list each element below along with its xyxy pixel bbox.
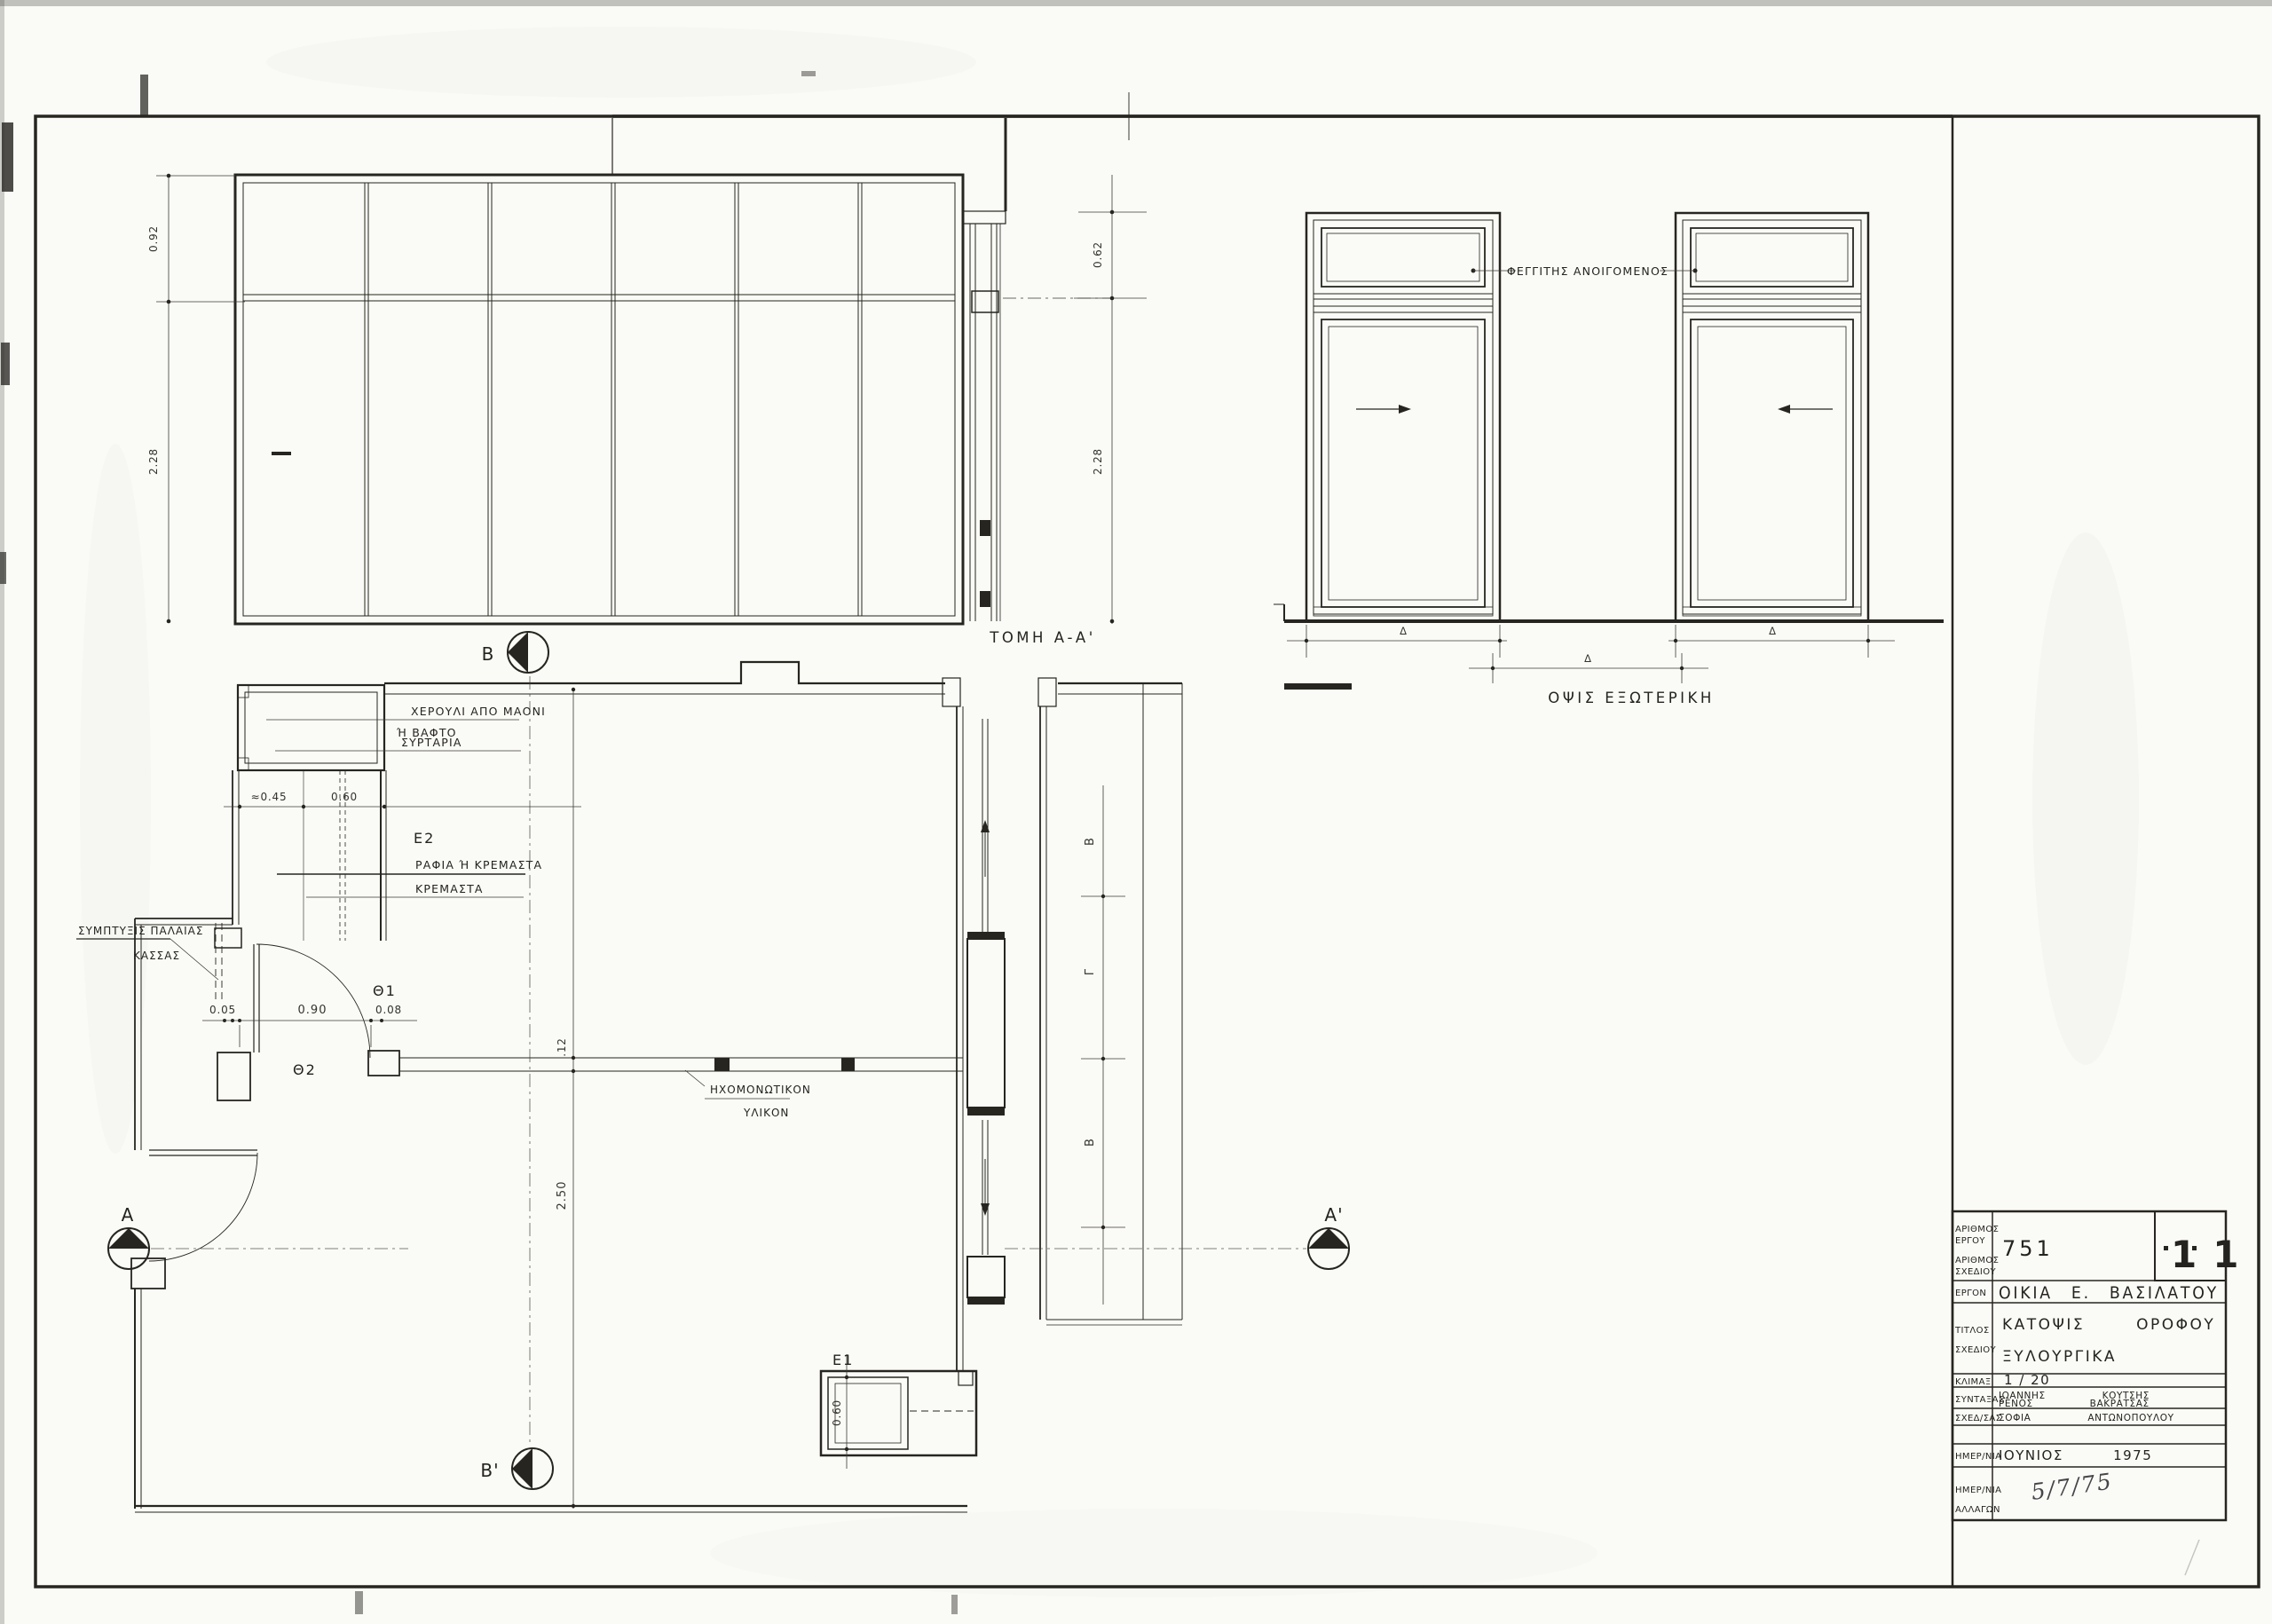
- dim-door-width: 0.90: [298, 1004, 327, 1017]
- dim-e1-width: 0.60: [831, 1399, 843, 1426]
- scale-value: 1 / 20: [2004, 1372, 2050, 1388]
- corridor-dims: Β Γ Β: [1081, 785, 1125, 1305]
- swing-arrow-icon: [1399, 405, 1411, 414]
- closet-e1: 0.60 Ε1: [821, 1352, 976, 1469]
- drawers-note: ΣΥΡΤΑΡΙΑ: [401, 736, 462, 749]
- swing-arrow-icon: [1778, 405, 1790, 414]
- floor-plan: 0.60 Ε1: [76, 632, 1349, 1512]
- elevation-view: ΦΕΓΓΙΤΗΣ ΑΝΟΙΓΟΜΕΝΟΣ Δ Δ Δ ΟΨΙΣ ΕΞΩΤΕΡΙΚ…: [612, 116, 1952, 706]
- dim-section-left-top: 0.92: [147, 225, 160, 252]
- shelves-note-2: ΚΡΕΜΑΣΤΑ: [415, 882, 484, 895]
- drawing-sheet: 0.92 2.28 0.62 2.28 ΤΟΜΗ Α-Α': [0, 0, 2272, 1624]
- partition-wall: [399, 1058, 963, 1071]
- section-left-dims: 0.92 2.28: [147, 174, 245, 624]
- section-view: 0.92 2.28 0.62 2.28 ΤΟΜΗ Α-Α': [147, 118, 1147, 646]
- svg-text:ΕΡΓΟΥ: ΕΡΓΟΥ: [1955, 1236, 1985, 1246]
- project-number-label: ΑΡΙΘΜΟΣ: [1955, 1225, 1999, 1234]
- section-right-dims: 0.62 2.28: [1003, 175, 1147, 624]
- svg-text:ΑΛΛΑΓΩΝ: ΑΛΛΑΓΩΝ: [1955, 1505, 2000, 1515]
- door-jamb: [368, 1051, 399, 1076]
- dim-section-right-bottom: 2.28: [1092, 448, 1104, 475]
- dim-e2-depth: ≈0.45: [251, 791, 288, 803]
- marker-b: B: [482, 632, 548, 673]
- corridor-dim-b2: Β: [1084, 1138, 1097, 1147]
- svg-text:ΣΧΕΔΙΟΥ: ΣΧΕΔΙΟΥ: [1955, 1345, 1997, 1355]
- svg-text:ΣΧΕΔΙΟΥ: ΣΧΕΔΙΟΥ: [1955, 1267, 1997, 1277]
- door-dims: 0.05 0.90 0.08: [202, 1004, 417, 1047]
- dim-delta-mid: Δ: [1584, 652, 1591, 665]
- svg-text:A: A: [122, 1204, 135, 1226]
- drawing-number-label: ΑΡΙΘΜΟΣ: [1955, 1256, 1999, 1265]
- handle-note-1: ΧΕΡΟΥΛΙ ΑΠΟ ΜΑΟΝΙ: [411, 705, 546, 718]
- scan-artifacts: [0, 0, 2272, 1624]
- old-frame: [215, 923, 241, 1001]
- marker-b-prime: B': [480, 1448, 553, 1489]
- corridor-dim-b1: Β: [1084, 837, 1097, 846]
- sheet-number: 11: [2171, 1233, 2254, 1276]
- insulation-note-1: ΗΧΟΜΟΝΩΤΙΚΟΝ: [710, 1084, 811, 1096]
- section-title: ΤΟΜΗ Α-Α': [989, 629, 1096, 646]
- scale-label: ΚΛΙΜΑΞ: [1955, 1377, 1992, 1387]
- door-swing-arc: [149, 1153, 257, 1261]
- drawing-title-1: ΚΑΤΟΨΙΣ ΟΡΟΦΟΥ: [2002, 1316, 2215, 1334]
- svg-text:B: B: [482, 643, 495, 665]
- dim-section-right-top: 0.62: [1092, 241, 1104, 268]
- date-label: ΗΜΕΡ/ΝΙΑ: [1955, 1452, 2001, 1462]
- drawing-title-label: ΤΙΤΛΟΣ: [1954, 1326, 1990, 1336]
- elevation-title: ΟΨΙΣ ΕΞΩΤΕΡΙΚΗ: [1548, 690, 1715, 706]
- elevation-door-left: [1306, 213, 1500, 621]
- revision-label: ΗΜΕΡ/ΝΙΑ: [1955, 1486, 2001, 1495]
- old-frame-note-1: ΣΥΜΠΤΥΞΙΣ ΠΑΛΑΙΑΣ: [78, 925, 203, 937]
- e2-dims: ≈0.45 0.60: [224, 791, 581, 808]
- elevation-door-right: [1676, 213, 1868, 621]
- door-leaf: [1691, 319, 1853, 607]
- revision-date-handwritten: 5/7/75: [2030, 1468, 2115, 1505]
- old-frame-note-2: ΚΑΣΣΑΣ: [133, 950, 180, 962]
- shelves-note-1: ΡΑΦΙΑ Ή ΚΡΕΜΑΣΤΑ: [415, 858, 542, 871]
- section-mullions: [243, 183, 955, 616]
- corridor-dim-g: Γ: [1084, 968, 1097, 975]
- east-walls: [1046, 683, 1182, 1325]
- door2-label: Θ2: [293, 1061, 317, 1078]
- section-jamb-detail: [963, 118, 1006, 621]
- transom-callout: ΦΕΓΓΙΤΗΣ ΑΝΟΙΓΟΜΕΝΟΣ: [1471, 264, 1698, 278]
- svg-text:A': A': [1324, 1204, 1343, 1226]
- transom-note: ΦΕΓΓΙΤΗΣ ΑΝΟΙΓΟΜΕΝΟΣ: [1507, 264, 1668, 278]
- door-swing-arc: [256, 944, 370, 1058]
- dim-delta-left: Δ: [1400, 625, 1407, 637]
- author-label: ΣΥΝΤΑΞΑΣ: [1955, 1395, 2005, 1405]
- door-jamb: [967, 1257, 1005, 1297]
- draftsman: ΣΟΦΙΑ ΑΝΤΩΝΟΠΟΥΛΟΥ: [1999, 1413, 2174, 1423]
- author-2: ΡΕΝΟΣ ΒΑΚΡΑΤΣΑΣ: [1999, 1399, 2150, 1409]
- transom-window: [1691, 228, 1853, 287]
- closet-e2-label: Ε2: [414, 830, 435, 847]
- project-name: ΟΙΚΙΑ Ε. ΒΑΣΙΛΑΤΟΥ: [1999, 1283, 2219, 1303]
- dim-wall-thickness: .12: [556, 1037, 568, 1056]
- draftsman-label: ΣΧΕΔ/ΣΑΣ: [1955, 1414, 2001, 1423]
- sheet-frame: [35, 92, 2259, 1587]
- door-jamb: [217, 1052, 250, 1100]
- project-label: ΕΡΓΟΝ: [1955, 1289, 1986, 1298]
- closet-e1-label: Ε1: [832, 1352, 854, 1368]
- border-rect: [35, 116, 2259, 1587]
- drawing-title-2: ΞΥΛΟΥΡΓΙΚΑ: [2002, 1348, 2117, 1366]
- insulation-note-2: ΥΛΙΚΟΝ: [743, 1107, 789, 1119]
- svg-text:B': B': [480, 1460, 499, 1481]
- door-jamb: [131, 1258, 165, 1289]
- dim-jamb: 0.08: [375, 1004, 402, 1016]
- room-depth-dim: .12 2.50: [556, 688, 575, 1509]
- date-value: ΙΟΥΝΙΟΣ 1975: [1999, 1447, 2152, 1463]
- architectural-drawing: 0.92 2.28 0.62 2.28 ΤΟΜΗ Α-Α': [0, 0, 2272, 1624]
- dim-e2-width: 0.60: [331, 791, 358, 803]
- marker-a-prime: A': [1308, 1204, 1349, 1269]
- dim-gap: 0.05: [209, 1004, 236, 1016]
- door-leaf: [1321, 319, 1485, 607]
- plan-notes: ΧΕΡΟΥΛΙ ΑΠΟ ΜΑΟΝΙ Ή ΒΑΦΤΟ ΣΥΡΤΑΡΙΑ ΡΑΦΙΑ…: [76, 705, 811, 1119]
- marker-a: A: [108, 1204, 149, 1269]
- dim-room-depth: 2.50: [556, 1181, 569, 1210]
- sliding-door-panel: [967, 939, 1005, 1108]
- transom-window: [1321, 228, 1485, 287]
- project-number: 751: [2002, 1236, 2054, 1261]
- door1-label: Θ1: [373, 982, 397, 999]
- corridor: [943, 678, 1056, 1371]
- drawer-unit: [238, 685, 384, 770]
- dim-delta-right: Δ: [1769, 625, 1776, 637]
- title-block: ΑΡΙΘΜΟΣ ΕΡΓΟΥ ΑΡΙΘΜΟΣ ΣΧΕΔΙΟΥ 751 11 ΕΡΓ…: [1952, 1211, 2254, 1520]
- dim-section-left-bottom: 2.28: [147, 448, 160, 475]
- west-wall-doors: [131, 918, 399, 1509]
- elevation-dims: Δ Δ Δ: [1287, 625, 1895, 683]
